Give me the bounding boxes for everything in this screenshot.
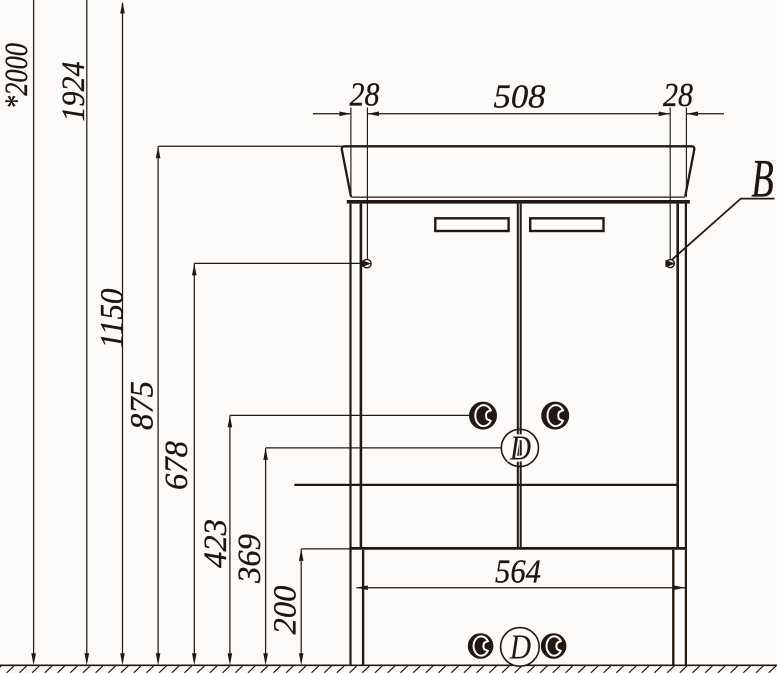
svg-text:1924: 1924 [56,62,92,122]
svg-text:*2000: *2000 [0,43,35,109]
svg-text:564: 564 [495,554,541,591]
svg-text:508: 508 [494,79,546,116]
svg-text:D: D [509,428,531,467]
svg-text:369: 369 [232,534,268,584]
svg-text:28: 28 [350,77,380,114]
svg-text:423: 423 [198,519,234,568]
svg-text:B: B [751,149,773,209]
svg-text:28: 28 [663,77,693,114]
svg-text:875: 875 [125,381,161,430]
svg-text:D: D [509,627,531,666]
svg-text:1150: 1150 [95,288,131,348]
svg-text:678: 678 [159,441,195,490]
svg-text:200: 200 [268,585,304,634]
